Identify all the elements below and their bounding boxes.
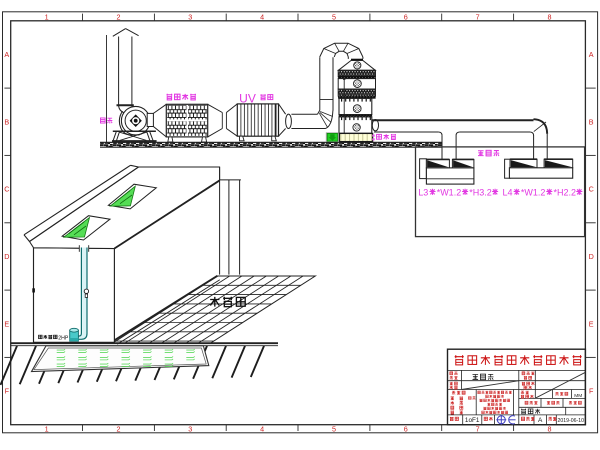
svg-text:D: D [589, 252, 594, 261]
svg-text:3: 3 [188, 425, 192, 434]
svg-text:B: B [4, 117, 9, 126]
svg-text:4: 4 [260, 425, 264, 434]
svg-text:MM: MM [574, 393, 582, 399]
svg-text:1: 1 [45, 12, 49, 21]
svg-text:4: 4 [260, 12, 264, 21]
svg-text:C: C [4, 185, 9, 194]
svg-text:6: 6 [404, 12, 408, 21]
svg-text:A: A [4, 50, 9, 59]
svg-text:1: 1 [45, 425, 49, 434]
svg-text:C: C [589, 185, 594, 194]
svg-text:E: E [589, 319, 594, 328]
svg-text:B: B [589, 117, 594, 126]
svg-text:A: A [538, 417, 543, 424]
svg-text:8: 8 [548, 425, 552, 434]
svg-text:2019-06-10: 2019-06-10 [558, 418, 585, 424]
svg-text:*W1.2: *W1.2 [437, 187, 462, 197]
svg-text:E: E [4, 319, 9, 328]
svg-text:L3: L3 [418, 187, 428, 197]
svg-text:*H2.2: *H2.2 [554, 187, 577, 197]
svg-text:D: D [4, 252, 9, 261]
svg-text:8: 8 [548, 12, 552, 21]
svg-text:5: 5 [332, 425, 336, 434]
svg-text:*H3.2: *H3.2 [469, 187, 492, 197]
svg-text:1oF1: 1oF1 [465, 417, 480, 424]
svg-text:2: 2 [117, 12, 121, 21]
svg-text:7: 7 [476, 425, 480, 434]
svg-text:F: F [589, 387, 594, 396]
svg-text:5: 5 [332, 12, 336, 21]
svg-text:A: A [589, 50, 594, 59]
svg-text:UV: UV [239, 91, 256, 105]
svg-text:F: F [5, 387, 10, 396]
svg-text:2HP: 2HP [58, 335, 69, 341]
svg-text:3: 3 [188, 12, 192, 21]
svg-text:L4: L4 [503, 187, 513, 197]
svg-text:6: 6 [404, 425, 408, 434]
svg-text:*W1.2: *W1.2 [521, 187, 546, 197]
svg-text:7: 7 [476, 12, 480, 21]
svg-text:2: 2 [117, 425, 121, 434]
